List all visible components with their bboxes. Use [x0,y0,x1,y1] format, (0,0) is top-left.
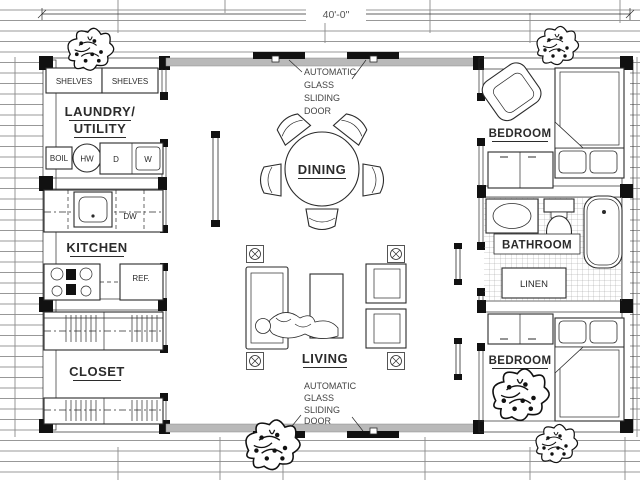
dryer-washer-unit: D W [100,143,163,174]
pillow [590,321,617,343]
living-area: LIVING [246,246,406,370]
bathroom: BATHROOM LINEN [484,196,622,301]
laundry-room-label-line2: UTILITY [74,121,127,136]
plant [536,424,578,462]
left-container-right-wall [160,69,168,421]
water-heater-label: HW [80,155,94,164]
stove [44,264,100,300]
door-note-bottom-line3: SLIDING [304,405,340,415]
kitchen-counter-sink: DW [44,190,163,232]
closet-rod-upper [44,312,163,350]
door-note-top: AUTOMATIC GLASS SLIDING DOOR [289,60,366,116]
glass-wall-top [166,58,480,66]
living-room-label: LIVING [302,351,348,366]
dining-chair [261,164,282,196]
bed-bottom [555,318,624,421]
pillow [559,321,586,343]
washer-label: W [144,155,152,164]
dining-area: DINING [261,109,384,229]
armchair-living-1 [366,264,406,303]
dryer-label: D [113,155,119,164]
pillow [590,151,617,173]
door-note-top-line1: AUTOMATIC [304,67,357,77]
center-section: AUTOMATIC GLASS SLIDING DOOR AUTOMATIC G… [166,52,484,438]
pillow [559,151,586,173]
dresser-top [488,152,553,188]
floor-outlet [388,246,405,263]
door-note-top-line4: DOOR [304,106,332,116]
overall-width-dimension: 40'-0" [323,9,350,21]
bathroom-label: BATHROOM [502,240,572,252]
linen-closet: LINEN [502,268,566,298]
floor-plan-drawing: 40'-0" SHELVES SHELVES LA [0,0,640,480]
boiler-label: BOIL [50,154,69,163]
refrigerator: REF. [100,264,163,300]
kitchen-closet-divider-wall [43,299,166,310]
partition-stub-bedroom [454,338,462,380]
left-container: SHELVES SHELVES LAUNDRY/ UTILITY BOIL HW… [39,56,170,434]
floor-outlet [247,246,264,263]
partition-wall-dining [211,131,220,227]
door-note-bottom-line2: GLASS [304,393,334,403]
dresser-bottom [488,314,553,344]
floor-outlet [247,353,264,370]
laundry-shelves: SHELVES SHELVES [46,68,158,93]
water-heater: HW [73,144,101,172]
right-container-left-wall [477,69,485,421]
dining-room-label: DINING [298,162,347,177]
bedroom-bottom: BEDROOM [488,314,624,421]
closet-room-label: CLOSET [69,364,125,379]
bathroom-sink [486,199,538,233]
shelves-right-label: SHELVES [112,77,148,86]
bed-top [555,68,624,178]
bathroom-bedroom-divider-wall [479,301,632,312]
boiler: BOIL [46,147,72,169]
door-note-bottom: AUTOMATIC GLASS SLIDING DOOR [288,381,363,431]
floor-outlet [388,353,405,370]
door-note-top-line2: GLASS [304,80,334,90]
bathtub [584,196,622,268]
armchair-living-2 [366,309,406,348]
dining-chair [306,209,338,230]
refrigerator-label: REF. [132,274,149,283]
door-note-bottom-line4: DOOR [304,416,332,426]
dining-chair [363,164,384,196]
left-container-left-wall [43,60,56,430]
dishwasher-label: DW [123,212,137,221]
plant [493,369,549,420]
bedroom-bottom-label: BEDROOM [489,355,552,367]
shelves-left-label: SHELVES [56,77,92,86]
laundry-kitchen-divider-wall [43,178,166,189]
door-note-top-line3: SLIDING [304,93,340,103]
laundry-room-label-line1: LAUNDRY/ [65,104,136,119]
partition-stub-bathroom [454,243,462,285]
closet-rod-lower [44,398,163,424]
bedroom-top: BEDROOM [478,59,624,188]
right-container: BEDROOM BATHROOM LI [477,56,633,433]
bedroom-armchair [478,59,545,125]
door-note-bottom-line1: AUTOMATIC [304,381,357,391]
bedroom-top-label: BEDROOM [489,128,552,140]
floor-plan-page: 40'-0" SHELVES SHELVES LA [0,0,640,480]
kitchen-room-label: KITCHEN [66,240,127,255]
linen-label: LINEN [520,279,548,290]
